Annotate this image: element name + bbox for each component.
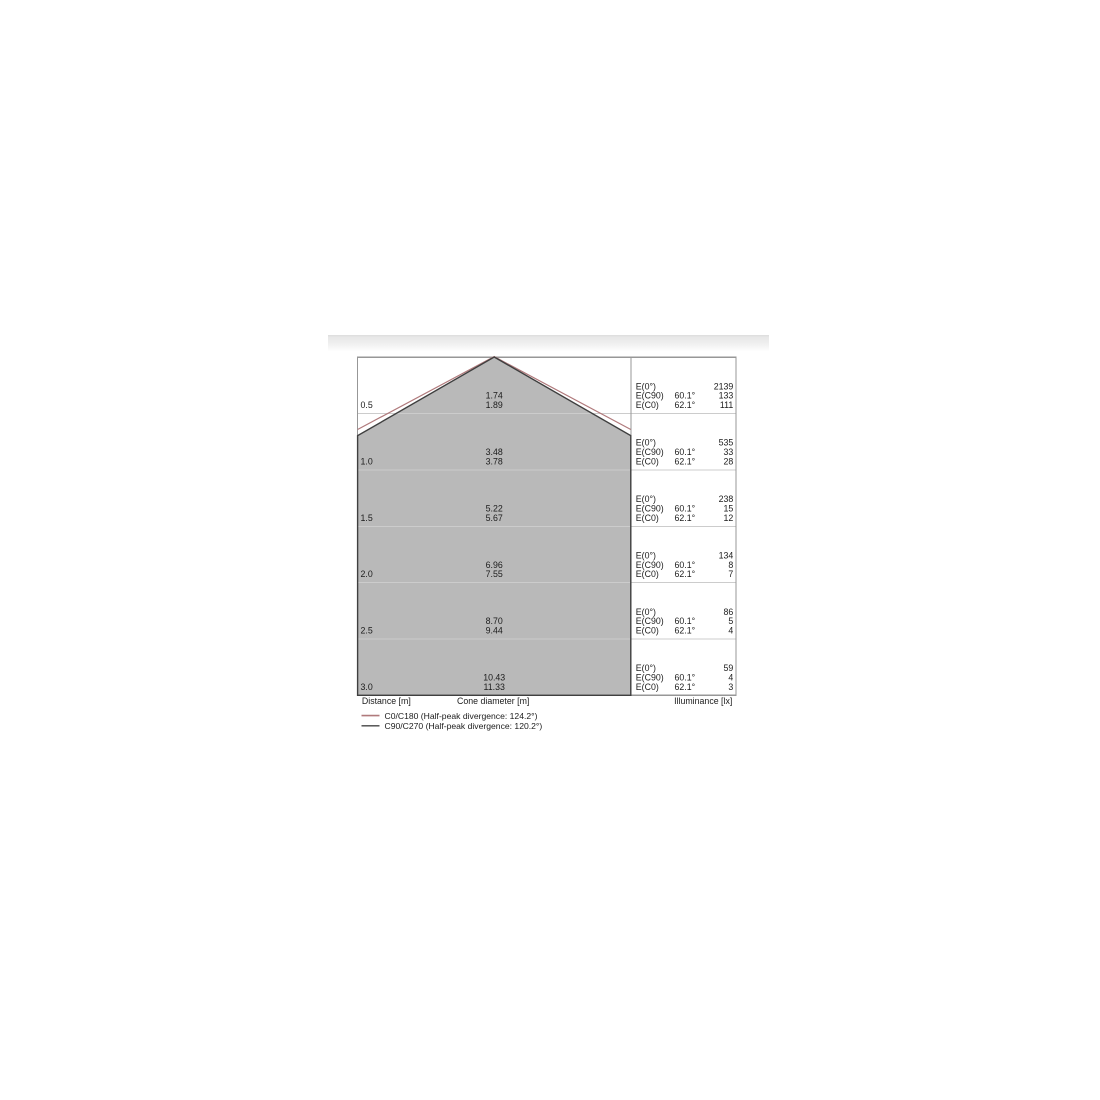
svg-text:E(C0): E(C0) [636,457,659,467]
svg-text:E(C0): E(C0) [636,682,659,692]
svg-text:Illuminance [lx]: Illuminance [lx] [674,696,732,706]
svg-text:60.1°: 60.1° [675,616,696,626]
svg-text:62.1°: 62.1° [675,682,696,692]
svg-text:3: 3 [728,682,733,692]
svg-text:C90/C270 (Half-peak divergence: C90/C270 (Half-peak divergence: 120.2°) [385,721,543,731]
svg-text:5.67: 5.67 [486,513,503,523]
svg-text:2.5: 2.5 [361,626,373,636]
svg-text:Distance [m]: Distance [m] [362,696,411,706]
svg-text:E(C0): E(C0) [636,513,659,523]
svg-text:7.55: 7.55 [486,569,503,579]
svg-text:E(C0): E(C0) [636,626,659,636]
svg-text:4: 4 [728,626,733,636]
svg-text:E(C0): E(C0) [636,400,659,410]
svg-text:8.70: 8.70 [486,616,503,626]
svg-text:3.0: 3.0 [361,682,373,692]
svg-text:11.33: 11.33 [484,682,505,692]
svg-text:C0/C180 (Half-peak divergence:: C0/C180 (Half-peak divergence: 124.2°) [385,711,538,721]
svg-text:62.1°: 62.1° [675,626,696,636]
svg-text:E(C0): E(C0) [636,569,659,579]
svg-text:111: 111 [720,400,733,410]
svg-text:1.89: 1.89 [486,400,503,410]
svg-text:2.0: 2.0 [361,569,373,579]
svg-text:62.1°: 62.1° [675,513,696,523]
svg-text:28: 28 [724,457,734,467]
svg-text:62.1°: 62.1° [675,457,696,467]
svg-text:Cone diameter [m]: Cone diameter [m] [457,696,529,706]
svg-text:12: 12 [724,513,734,523]
svg-text:0.5: 0.5 [361,400,373,410]
svg-text:3.78: 3.78 [486,457,503,467]
svg-text:1.0: 1.0 [361,457,373,467]
svg-text:9.44: 9.44 [486,626,503,636]
svg-text:62.1°: 62.1° [675,569,696,579]
svg-text:5: 5 [728,616,733,626]
svg-text:1.5: 1.5 [361,513,373,523]
svg-text:E(C90): E(C90) [636,616,664,626]
svg-text:62.1°: 62.1° [675,400,696,410]
svg-text:7: 7 [728,569,733,579]
